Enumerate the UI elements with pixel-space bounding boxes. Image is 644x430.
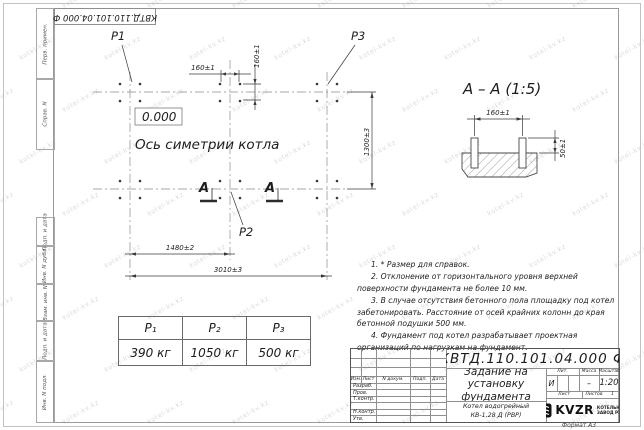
tb-product-line2: КВ-1,28 Д (РВР) <box>471 412 522 419</box>
top-designation-text: КВТД.110.101.04.000 Ф <box>53 12 157 22</box>
tb-product-name: Котел водогрейный КВ-1,28 Д (РВР) <box>448 401 544 422</box>
load-table-value-row: 390 кг 1050 кг 500 кг <box>119 340 311 366</box>
load-point-leaders <box>122 45 355 225</box>
section-dim-text-protrusion: 50±1 <box>559 139 567 158</box>
format-label: Формат А3 <box>540 422 618 429</box>
margin-cell-podp-data-1: Подп. и дата <box>36 217 55 247</box>
axis-caption: Ось симетрии котла <box>135 137 279 153</box>
load-table-header: P₃ <box>247 317 311 340</box>
dim-full-length <box>125 274 332 277</box>
load-table-value: 1050 кг <box>183 340 247 366</box>
kvzr-logo-text: KVZR <box>555 403 594 417</box>
foundation-plan-view: 160±1 160±1 1300±3 <box>55 24 395 300</box>
load-table-value: 500 кг <box>247 340 311 366</box>
load-table-header: P₂ <box>183 317 247 340</box>
load-point-label-p1: P1 <box>111 29 125 43</box>
kvzr-logo-icon <box>546 403 552 418</box>
margin-cell-inv-podl: Инв. N подл. <box>36 360 55 423</box>
margin-label: Взам. инв. N <box>43 285 49 321</box>
centerlines <box>93 60 347 280</box>
tb-header-podp: Подп. <box>410 376 430 383</box>
tb-sheets-header: Листов <box>582 391 606 398</box>
margin-cell-sprav-n: Справ. N <box>36 78 55 150</box>
load-table-header: P₁ <box>119 317 183 340</box>
top-designation-box: КВТД.110.101.04.000 Ф <box>54 8 156 25</box>
load-point-label-p3: P3 <box>351 29 365 43</box>
section-mark-right: А <box>264 181 275 196</box>
tb-header-list: Лист <box>361 376 376 383</box>
margin-label: Инв. N подл. <box>43 373 49 409</box>
margin-label: Перв. примен. <box>43 23 49 64</box>
load-table: P₁ P₂ P₃ 390 кг 1050 кг 500 кг <box>118 316 311 366</box>
elevation-value: 0.000 <box>142 110 177 124</box>
load-point-label-p2: P2 <box>239 225 253 239</box>
dim-bolt-spacing-y <box>243 64 261 110</box>
drawing-sheet: kotel-kv.kzkotel-kv.kzkotel-kv.kzkotel-k… <box>0 0 644 430</box>
tb-mass-value: – <box>579 375 599 391</box>
tb-designation: КВТД.110.101.04.000 Ф <box>446 349 619 368</box>
kvzr-tagline: КОТЕЛЬНЫЙ ЗАВОД РЭП <box>597 405 619 416</box>
technical-notes: 1. * Размер для справок. 2. Отклонение о… <box>357 259 617 354</box>
margin-cell-inv-dubl: Инв. N дубл. <box>36 245 55 285</box>
tb-product-line1: Котел водогрейный <box>463 403 529 410</box>
tb-scale-header: Масштаб <box>599 368 619 375</box>
dim-text-half-length: 1480±2 <box>166 244 195 252</box>
tb-staff-utv: Утв. <box>351 415 378 422</box>
dim-text-width: 1300±3 <box>363 128 371 156</box>
dim-width <box>347 92 376 189</box>
tb-staff-prov: Пров. <box>351 389 378 396</box>
section-dim-bolt-spacing <box>467 115 530 136</box>
tb-lit-header: Лит. <box>546 368 579 375</box>
load-table-value: 390 кг <box>119 340 183 366</box>
tb-sheet-header: Лист <box>546 391 582 398</box>
dim-text-bolt-spacing-x: 160±1 <box>191 64 215 72</box>
margin-label: Подп. и дата <box>43 322 49 359</box>
tb-sheets-value: 1 <box>606 391 619 398</box>
tb-header-izm: Изм. <box>351 376 361 383</box>
margin-label: Инв. N дубл. <box>43 247 49 283</box>
tb-mass-header: Масса <box>579 368 599 375</box>
margin-cell-vzam-inv: Взам. инв. N <box>36 283 55 322</box>
tb-scale-value: 1:20 <box>599 375 619 391</box>
tb-company-cell: KVZR КОТЕЛЬНЫЙ ЗАВОД РЭП <box>546 398 619 422</box>
load-table-header-row: P₁ P₂ P₃ <box>119 317 311 340</box>
note-item: 1. * Размер для справок. <box>357 259 617 270</box>
note-item: 3. В случае отсутствия бетонного пола пл… <box>357 295 617 329</box>
section-view-a-a: А – А (1:5) 160±1 <box>437 70 637 200</box>
title-block: Изм. Лист N докум. Подп. Дата Разраб. Пр… <box>350 348 620 423</box>
dim-half-length <box>125 252 235 255</box>
tb-header-ndokum: N докум. <box>376 376 410 383</box>
tb-header-data: Дата <box>430 376 446 383</box>
dim-text-full-length: 3010±3 <box>214 266 242 274</box>
section-title: А – А (1:5) <box>462 80 541 98</box>
section-mark-left: А <box>198 181 209 196</box>
section-dim-text-bolt-spacing: 160±1 <box>486 109 510 117</box>
tb-doc-title: Задание на установку фундамента <box>448 368 544 401</box>
tb-lit-value: И <box>546 375 557 391</box>
tb-staff-tkontr: Т.контр. <box>351 396 378 402</box>
note-item: 2. Отклонение от горизонтального уровня … <box>357 271 617 294</box>
dim-text-bolt-spacing-y: 160±1 <box>253 44 261 68</box>
margin-label: Справ. N <box>43 101 49 126</box>
margin-cell-podp-data-2: Подп. и дата <box>36 320 55 362</box>
